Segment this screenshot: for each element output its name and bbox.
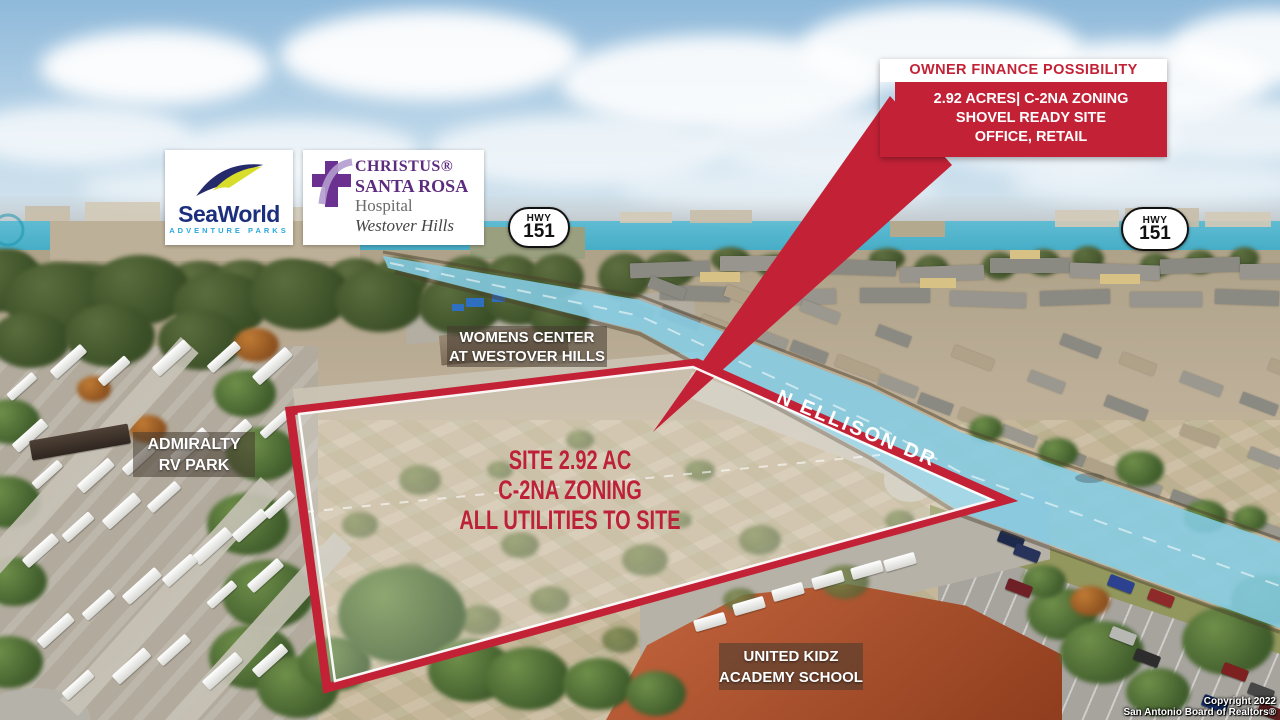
seaworld-wordmark: SeaWorld (165, 202, 293, 226)
banner-line-1: 2.92 ACRES| C-2NA ZONING (897, 90, 1165, 109)
copyright-line-1: Copyright 2022 (1123, 696, 1276, 707)
christus-line-4: Westover Hills (355, 216, 481, 236)
banner-header: OWNER FINANCE POSSIBILITY (880, 59, 1167, 82)
rv-park-label-line-2: RV PARK (133, 455, 255, 476)
shield-right-number: 151 (1139, 225, 1171, 243)
copyright-notice: Copyright 2022 San Antonio Board of Real… (1123, 696, 1276, 718)
rv-park-label-line-1: ADMIRALTY (133, 434, 255, 455)
distant-ferris-wheel (0, 215, 23, 245)
admiralty-rv-park-label: ADMIRALTY RV PARK (133, 432, 255, 477)
seaworld-wave-icon (188, 155, 270, 201)
school-label-line-2: ACADEMY SCHOOL (719, 667, 863, 688)
seaworld-tagline: ADVENTURE PARKS (165, 226, 293, 236)
shield-left-number: 151 (523, 223, 555, 241)
womens-center-label-line-1: WOMENS CENTER (447, 328, 607, 347)
christus-line-3: Hospital (355, 196, 481, 216)
seaworld-logo-box: SeaWorld ADVENTURE PARKS (165, 150, 293, 245)
christus-line-1: CHRISTUS® (355, 158, 481, 176)
hwy-151-shield-right: HWY 151 (1121, 207, 1189, 251)
christus-logo-box: CHRISTUS® SANTA ROSA Hospital Westover H… (303, 150, 484, 245)
copyright-line-2: San Antonio Board of Realtors® (1123, 707, 1276, 718)
aerial-site-flyer: OWNER FINANCE POSSIBILITY 2.92 ACRES| C-… (0, 0, 1280, 720)
site-callout-line-2: C-2NA ZONING (422, 475, 718, 505)
christus-wordmark: CHRISTUS® SANTA ROSA Hospital Westover H… (355, 158, 481, 236)
womens-center-label: WOMENS CENTER AT WESTOVER HILLS (447, 326, 607, 367)
united-kidz-label: UNITED KIDZ ACADEMY SCHOOL (719, 643, 863, 690)
hwy-151-shield-left: HWY 151 (508, 207, 570, 248)
school-label-line-1: UNITED KIDZ (719, 646, 863, 667)
owner-finance-banner: OWNER FINANCE POSSIBILITY 2.92 ACRES| C-… (880, 59, 1167, 157)
site-callout-line-1: SITE 2.92 AC (422, 445, 718, 475)
banner-line-3: OFFICE, RETAIL (897, 128, 1165, 147)
banner-line-2: SHOVEL READY SITE (897, 109, 1165, 128)
womens-center-label-line-2: AT WESTOVER HILLS (447, 347, 607, 366)
site-callout-line-3: ALL UTILITIES TO SITE (422, 505, 718, 535)
christus-cross-icon (309, 158, 355, 212)
banner-body: 2.92 ACRES| C-2NA ZONING SHOVEL READY SI… (895, 82, 1167, 157)
christus-line-2: SANTA ROSA (355, 176, 481, 196)
site-callout: SITE 2.92 AC C-2NA ZONING ALL UTILITIES … (422, 445, 718, 535)
